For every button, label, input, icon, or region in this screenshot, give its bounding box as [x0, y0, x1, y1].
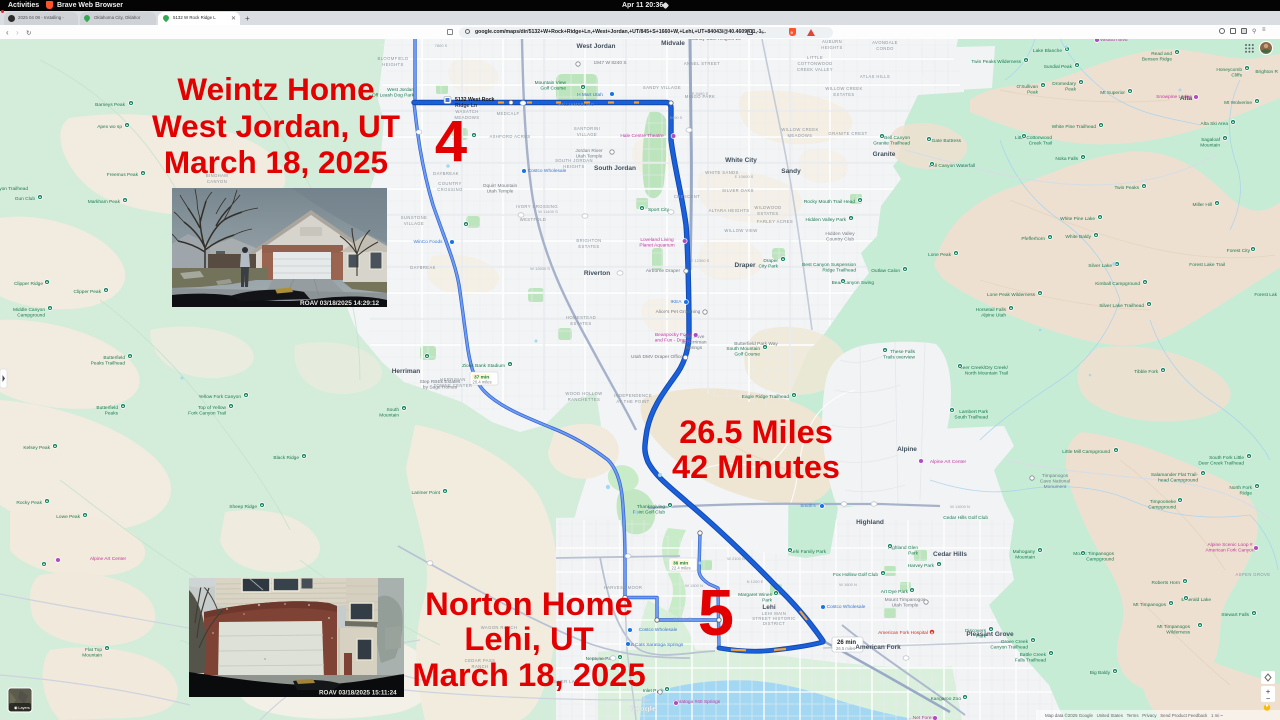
- svg-text:Butterfield: Butterfield: [103, 355, 125, 361]
- svg-text:SUNSTONE: SUNSTONE: [401, 215, 427, 220]
- svg-text:W 2100 N: W 2100 N: [727, 556, 745, 561]
- svg-text:Markham Peak: Markham Peak: [88, 199, 121, 205]
- svg-text:Falls Trailhead: Falls Trailhead: [1015, 658, 1047, 664]
- svg-text:Big Baldy: Big Baldy: [1090, 670, 1111, 676]
- svg-text:Utah Temple: Utah Temple: [576, 154, 603, 160]
- svg-text:South Trailhead: South Trailhead: [954, 415, 988, 421]
- svg-text:COTTONWOOD: COTTONWOOD: [797, 61, 832, 66]
- svg-text:INDEPENDENCE: INDEPENDENCE: [614, 393, 652, 398]
- svg-text:Hidden Valley Park: Hidden Valley Park: [806, 217, 847, 223]
- svg-text:Draper: Draper: [763, 258, 778, 264]
- svg-text:Forest Lak: Forest Lak: [1254, 292, 1277, 298]
- svg-text:Grove Creek: Grove Creek: [1001, 639, 1029, 645]
- svg-text:Fork Canyon Trail: Fork Canyon Trail: [188, 411, 226, 417]
- svg-text:E 12300 S: E 12300 S: [691, 258, 710, 263]
- svg-text:Top of Yellow: Top of Yellow: [198, 405, 227, 411]
- svg-text:Canyon Trailhead: Canyon Trailhead: [990, 645, 1028, 651]
- svg-text:Thanksgiving: Thanksgiving: [637, 504, 666, 510]
- svg-text:SANTORINI: SANTORINI: [574, 126, 600, 131]
- svg-text:ALTARA HEIGHTS: ALTARA HEIGHTS: [709, 208, 750, 213]
- svg-text:Wilderness: Wilderness: [1166, 630, 1190, 636]
- svg-text:Mt Timpanogos: Mt Timpanogos: [1133, 602, 1166, 608]
- svg-text:Mt Timpanogos: Mt Timpanogos: [1157, 624, 1190, 630]
- svg-text:DAYBREAK: DAYBREAK: [410, 265, 436, 270]
- svg-text:Peaks: Peaks: [105, 411, 119, 417]
- svg-text:Bell Canyon Waterfall: Bell Canyon Waterfall: [929, 163, 975, 169]
- svg-text:Golf Course: Golf Course: [734, 352, 760, 358]
- svg-text:Alpine Art Center: Alpine Art Center: [90, 556, 127, 562]
- svg-text:Gun Club: Gun Club: [15, 196, 36, 202]
- svg-text:W 11400 S: W 11400 S: [538, 209, 558, 214]
- svg-text:AUBURN: AUBURN: [822, 39, 842, 44]
- svg-text:DISTRICT: DISTRICT: [763, 621, 786, 626]
- svg-text:WILLOW CREEK: WILLOW CREEK: [825, 86, 862, 91]
- svg-text:Lambert Park: Lambert Park: [959, 409, 988, 415]
- svg-text:Forest Lake Trail: Forest Lake Trail: [1189, 262, 1225, 268]
- svg-text:AT THE POINT: AT THE POINT: [616, 399, 649, 404]
- svg-text:W 12600 S: W 12600 S: [530, 266, 550, 271]
- svg-text:ROAV 03/18/2025 14:29:12: ROAV 03/18/2025 14:29:12: [300, 300, 380, 307]
- svg-text:Map data ©2025 Google United: Map data ©2025 Google United States Term…: [1045, 713, 1224, 718]
- svg-text:Rocky Mouth Trail Head: Rocky Mouth Trail Head: [804, 199, 856, 205]
- svg-text:Mt Wolverine: Mt Wolverine: [1224, 100, 1252, 106]
- svg-text:Loveland Living: Loveland Living: [640, 237, 674, 243]
- svg-text:Step RBEk Estates: Step RBEk Estates: [420, 379, 461, 385]
- svg-text:Sport City: Sport City: [648, 207, 670, 213]
- svg-text:HOMESTEAD: HOMESTEAD: [566, 315, 596, 320]
- svg-text:Butterfield: Butterfield: [96, 405, 118, 411]
- svg-text:South Jordan: South Jordan: [594, 165, 636, 172]
- svg-text:Utah DMV Draper Office: Utah DMV Draper Office: [631, 354, 683, 360]
- svg-text:ESTATES: ESTATES: [570, 321, 591, 326]
- svg-text:WILDWOOD: WILDWOOD: [754, 205, 781, 210]
- svg-text:RANCHETTES: RANCHETTES: [568, 397, 600, 402]
- svg-text:VILLAGE: VILLAGE: [404, 221, 424, 226]
- svg-text:Discovers: Discovers: [965, 628, 987, 634]
- svg-text:Roberts Horn: Roberts Horn: [1151, 580, 1180, 586]
- svg-text:VILLAGE: VILLAGE: [577, 132, 597, 137]
- svg-text:Mountain: Mountain: [1015, 555, 1035, 561]
- svg-text:COUNTRY: COUNTRY: [438, 181, 461, 186]
- svg-text:CREEK VALLEY: CREEK VALLEY: [797, 67, 833, 72]
- svg-text:South: South: [386, 407, 399, 413]
- svg-text:5400 S: 5400 S: [670, 115, 683, 120]
- svg-text:Stewart Falls: Stewart Falls: [1221, 612, 1249, 618]
- svg-text:South Fork Little: South Fork Little: [1209, 455, 1244, 461]
- svg-text:Middle Canyon: Middle Canyon: [13, 307, 45, 313]
- svg-text:Mount Timpanogos: Mount Timpanogos: [885, 597, 926, 603]
- svg-text:26.5 miles: 26.5 miles: [836, 646, 855, 651]
- svg-text:Larimer Point: Larimer Point: [411, 490, 440, 496]
- svg-text:Hidden Valley: Hidden Valley: [825, 231, 855, 237]
- svg-text:Granite Trailhead: Granite Trailhead: [873, 141, 910, 147]
- svg-text:City Park: City Park: [759, 264, 779, 270]
- svg-text:Campground: Campground: [1086, 557, 1114, 563]
- svg-text:Alta Ski Area: Alta Ski Area: [1201, 121, 1229, 127]
- svg-text:Deer Creek Trailhead: Deer Creek Trailhead: [1198, 461, 1244, 467]
- svg-text:Planet Aquarium: Planet Aquarium: [639, 243, 674, 249]
- svg-text:Trails overview: Trails overview: [883, 355, 915, 361]
- svg-text:Miller Hill: Miller Hill: [1193, 202, 1212, 208]
- svg-text:O'Sullivan: O'Sullivan: [1017, 84, 1039, 90]
- svg-text:Harvey Park: Harvey Park: [908, 563, 935, 569]
- svg-text:SANDY VILLAGE: SANDY VILLAGE: [643, 85, 681, 90]
- svg-text:American Fork Canyon: American Fork Canyon: [1205, 548, 1254, 554]
- svg-text:...Net Forest: ...Net Forest: [909, 715, 936, 720]
- svg-text:Cedar Hills Golf Club: Cedar Hills Golf Club: [943, 515, 988, 521]
- svg-text:H Mart Utah: H Mart Utah: [577, 92, 603, 98]
- svg-text:American Fork Hospital: American Fork Hospital: [878, 630, 928, 636]
- svg-text:White Baldy: White Baldy: [1065, 234, 1091, 240]
- svg-text:Timpooneke: Timpooneke: [1150, 499, 1177, 505]
- svg-text:Flat Top: Flat Top: [85, 647, 102, 653]
- svg-text:CONDO: CONDO: [876, 46, 894, 51]
- svg-text:HEIGHTS: HEIGHTS: [821, 45, 842, 50]
- svg-text:Mahogany: Mahogany: [1013, 549, 1036, 555]
- svg-text:WILLIAMSBURG: WILLIAMSBURG: [558, 102, 595, 107]
- svg-text:Snowpine Lodge: Snowpine Lodge: [1156, 94, 1192, 100]
- svg-text:FARLEY ACRES: FARLEY ACRES: [757, 219, 793, 224]
- svg-text:Creek Trail: Creek Trail: [1029, 141, 1052, 147]
- svg-text:W 11000 N: W 11000 N: [950, 504, 970, 509]
- svg-text:SILVER OAKS: SILVER OAKS: [722, 188, 754, 193]
- svg-text:Alpine Scenic Loop #: Alpine Scenic Loop #: [1207, 542, 1252, 548]
- svg-text:Peak: Peak: [1027, 90, 1039, 96]
- svg-text:Battle Creek: Battle Creek: [1020, 652, 1047, 658]
- svg-text:Lone Peak: Lone Peak: [928, 252, 952, 258]
- svg-text:Bear Canyon Swing: Bear Canyon Swing: [832, 280, 875, 286]
- svg-text:Mountain View: Mountain View: [535, 80, 567, 86]
- svg-text:Park: Park: [762, 598, 772, 604]
- svg-text:Oquirr Mountain: Oquirr Mountain: [483, 183, 518, 189]
- svg-text:Pfefferhorn: Pfefferhorn: [1021, 236, 1045, 242]
- svg-text:Utah Temple: Utah Temple: [892, 603, 919, 609]
- svg-text:◉ Layers: ◉ Layers: [14, 706, 30, 710]
- svg-text:Sheep Ridge: Sheep Ridge: [229, 504, 257, 510]
- svg-text:Country Club: Country Club: [826, 237, 854, 243]
- svg-text:E 10600 S: E 10600 S: [735, 174, 754, 179]
- svg-text:MEADOWS: MEADOWS: [788, 133, 813, 138]
- svg-text:Horsetail Falls: Horsetail Falls: [976, 307, 1007, 313]
- svg-text:head Campground: head Campground: [1158, 478, 1198, 484]
- svg-text:Rocky Peak: Rocky Peak: [16, 500, 42, 506]
- svg-text:Cedar Hills: Cedar Hills: [933, 551, 967, 558]
- svg-text:Golf Course: Golf Course: [540, 86, 566, 92]
- svg-text:W 1600 N: W 1600 N: [839, 582, 857, 587]
- svg-text:BLOOMFIELD: BLOOMFIELD: [378, 56, 409, 61]
- svg-text:Ridge: Ridge: [1239, 491, 1252, 497]
- svg-text:7800 S: 7800 S: [435, 43, 448, 48]
- svg-text:Alice's Pet Grooming: Alice's Pet Grooming: [656, 309, 701, 315]
- svg-text:Costco Wholesale: Costco Wholesale: [827, 604, 866, 610]
- svg-text:Fox Hollow Golf Club: Fox Hollow Golf Club: [833, 572, 878, 578]
- svg-text:Utah Temple: Utah Temple: [487, 189, 514, 195]
- svg-text:Lone Peak Wilderness: Lone Peak Wilderness: [987, 292, 1036, 298]
- svg-text:Airborne Draper: Airborne Draper: [646, 268, 681, 274]
- svg-text:Monument: Monument: [1044, 484, 1067, 490]
- svg-text:ASPEN GROVE: ASPEN GROVE: [1236, 572, 1271, 577]
- svg-text:Clipper Ridge: Clipper Ridge: [14, 281, 43, 287]
- svg-text:Jordan River: Jordan River: [575, 148, 603, 154]
- svg-text:IKEA: IKEA: [671, 299, 683, 305]
- svg-text:West Jordan: West Jordan: [577, 43, 616, 50]
- svg-text:Herriman: Herriman: [392, 368, 421, 375]
- svg-text:Google: Google: [629, 704, 657, 713]
- svg-text:Highland: Highland: [856, 519, 884, 526]
- svg-text:Black Ridge: Black Ridge: [273, 455, 299, 461]
- svg-text:Brighton R: Brighton R: [1255, 69, 1278, 75]
- svg-text:Kelsey Peak: Kelsey Peak: [23, 445, 50, 451]
- svg-text:by Sage Homes: by Sage Homes: [423, 385, 458, 391]
- svg-text:Lake Blanche: Lake Blanche: [1033, 48, 1062, 54]
- svg-text:Twin Peaks Wilderness: Twin Peaks Wilderness: [971, 59, 1021, 65]
- svg-text:Canyon Trailhead: Canyon Trailhead: [0, 186, 28, 192]
- svg-text:Salamander Flat Trail-: Salamander Flat Trail-: [1151, 472, 1199, 478]
- svg-text:Cliffs: Cliffs: [1231, 73, 1242, 79]
- svg-text:Art Dye Park: Art Dye Park: [881, 589, 909, 595]
- svg-text:Mountain: Mountain: [82, 653, 102, 659]
- svg-text:ANNEL STREET: ANNEL STREET: [684, 61, 720, 66]
- svg-text:Zions Bank Stadium: Zions Bank Stadium: [462, 363, 505, 369]
- svg-text:AVONDALE: AVONDALE: [872, 40, 898, 45]
- svg-text:Benson Ridge: Benson Ridge: [1142, 57, 1172, 63]
- svg-text:Noka Falls: Noka Falls: [1055, 156, 1078, 162]
- svg-text:North Mountain Trail: North Mountain Trail: [965, 371, 1008, 377]
- svg-text:Smith's: Smith's: [800, 503, 816, 509]
- svg-text:Sandy: Sandy: [781, 168, 801, 175]
- svg-text:Kangaroo Zoo: Kangaroo Zoo: [931, 696, 962, 702]
- svg-text:−: −: [1266, 696, 1270, 703]
- svg-text:HEIGHTS: HEIGHTS: [382, 62, 403, 67]
- svg-text:Lehi: Lehi: [762, 604, 776, 611]
- svg-text:Tibble Fork: Tibble Fork: [1134, 369, 1158, 375]
- svg-text:WOOD HOLLOW: WOOD HOLLOW: [565, 391, 602, 396]
- svg-text:Dromedary: Dromedary: [1052, 81, 1076, 87]
- svg-text:American Fork: American Fork: [855, 644, 901, 651]
- svg-text:ASHFORD ACRES: ASHFORD ACRES: [489, 134, 530, 139]
- svg-text:Eagle Ridge Trailhead: Eagle Ridge Trailhead: [742, 394, 790, 400]
- svg-text:White Pine Trailhead: White Pine Trailhead: [1052, 124, 1097, 130]
- svg-text:These Falls: These Falls: [890, 349, 915, 355]
- svg-text:20.4 miles: 20.4 miles: [473, 380, 492, 385]
- svg-text:Best Canyon Suspension: Best Canyon Suspension: [802, 262, 856, 268]
- svg-text:Gate Buttress: Gate Buttress: [932, 138, 962, 144]
- svg-text:Hale Centre Theatre: Hale Centre Theatre: [620, 133, 664, 139]
- svg-text:Springs: Springs: [686, 345, 703, 351]
- svg-text:Draper: Draper: [735, 262, 756, 269]
- svg-text:Sandy Utah Heights 16: Sandy Utah Heights 16: [691, 39, 741, 42]
- svg-text:Yellow Fork Canyon: Yellow Fork Canyon: [199, 394, 242, 400]
- svg-text:Lehi Family Park: Lehi Family Park: [790, 549, 826, 555]
- svg-text:1947 W 8240 S: 1947 W 8240 S: [593, 60, 626, 66]
- svg-text:Sagaloaf: Sagaloaf: [1201, 137, 1221, 143]
- svg-text:Mountain: Mountain: [379, 413, 399, 419]
- svg-text:Park: Park: [908, 551, 918, 557]
- svg-text:22.4 miles: 22.4 miles: [672, 566, 691, 571]
- svg-text:Costco Wholesale: Costco Wholesale: [528, 168, 567, 174]
- svg-text:LITTLE: LITTLE: [807, 55, 823, 60]
- svg-text:Little Mill Campground: Little Mill Campground: [1062, 449, 1110, 455]
- svg-text:Lowe Peak: Lowe Peak: [56, 514, 80, 520]
- svg-text:BRIGHTON: BRIGHTON: [576, 238, 601, 243]
- svg-text:Clipper Peak: Clipper Peak: [74, 289, 102, 295]
- svg-text:Silver Lake Trailhead: Silver Lake Trailhead: [1099, 303, 1144, 309]
- svg-text:Mt Superior: Mt Superior: [1100, 90, 1125, 96]
- svg-text:Little Cottonwood: Little Cottonwood: [1015, 135, 1052, 141]
- svg-text:White City: White City: [725, 157, 757, 164]
- svg-text:North Fork: North Fork: [1229, 485, 1252, 491]
- svg-text:Alpine Utah: Alpine Utah: [981, 313, 1006, 319]
- svg-text:E 9400 S: E 9400 S: [692, 91, 709, 96]
- svg-text:ESTATES: ESTATES: [757, 211, 778, 216]
- svg-text:Campground: Campground: [17, 313, 45, 319]
- svg-text:WILLOW CREEK: WILLOW CREEK: [781, 127, 818, 132]
- svg-text:CRESCENT: CRESCENT: [674, 194, 700, 199]
- svg-text:Saratoga #40 Springs: Saratoga #40 Springs: [674, 699, 721, 705]
- svg-text:White Pine Lake: White Pine Lake: [1060, 216, 1095, 222]
- svg-text:Forest City: Forest City: [1227, 248, 1251, 254]
- svg-text:Deer Creek/Dry Creek/: Deer Creek/Dry Creek/: [959, 365, 1008, 371]
- svg-text:WESTFOLD: WESTFOLD: [520, 217, 546, 222]
- svg-text:Mount Timpanogos: Mount Timpanogos: [1073, 551, 1114, 557]
- svg-text:Peaks Trailhead: Peaks Trailhead: [91, 361, 126, 367]
- svg-text:Cave National: Cave National: [1040, 479, 1070, 485]
- svg-text:Butterfield Park Way: Butterfield Park Way: [734, 341, 778, 347]
- svg-text:Peak: Peak: [1065, 87, 1077, 93]
- svg-text:Timpanogos: Timpanogos: [1042, 473, 1069, 479]
- svg-text:+: +: [1266, 689, 1270, 696]
- svg-text:Kimball Campground: Kimball Campground: [1095, 281, 1140, 287]
- svg-text:GRANITE CREST: GRANITE CREST: [828, 131, 867, 136]
- svg-text:ESTATES: ESTATES: [833, 92, 854, 97]
- svg-text:Campground: Campground: [1148, 505, 1176, 511]
- svg-text:WinCo Foods: WinCo Foods: [413, 239, 443, 245]
- svg-text:Mountain: Mountain: [1200, 143, 1220, 149]
- svg-text:Honeycomb: Honeycomb: [1216, 67, 1242, 73]
- svg-text:Riverton: Riverton: [584, 270, 610, 277]
- svg-text:Twin Peaks: Twin Peaks: [1114, 185, 1139, 191]
- svg-text:HEIGHTS: HEIGHTS: [563, 164, 584, 169]
- svg-text:Wasatch Blvd: Wasatch Blvd: [1098, 39, 1127, 43]
- svg-text:Beanpocky Food: Beanpocky Food: [655, 332, 691, 338]
- svg-text:and Fun - Draper: and Fun - Draper: [655, 338, 692, 344]
- svg-text:CROSSING: CROSSING: [437, 187, 463, 192]
- svg-text:MEDCALF: MEDCALF: [497, 111, 520, 116]
- svg-text:Midvale: Midvale: [661, 40, 685, 47]
- svg-text:ESTATES: ESTATES: [578, 244, 599, 249]
- svg-text:Silver Lake: Silver Lake: [1088, 263, 1112, 269]
- svg-text:Outlaw Calon: Outlaw Calon: [871, 268, 900, 274]
- svg-text:ATLAS HILLS: ATLAS HILLS: [860, 74, 890, 79]
- svg-text:Park: Park: [976, 634, 986, 640]
- svg-text:WILLOW VIEW: WILLOW VIEW: [724, 228, 757, 233]
- svg-text:Read and: Read and: [1151, 51, 1172, 57]
- svg-text:Granite: Granite: [873, 151, 896, 158]
- svg-text:Bell Canyon: Bell Canyon: [884, 135, 910, 141]
- svg-text:Sundial Peak: Sundial Peak: [1044, 64, 1073, 70]
- svg-text:Ridge Trailhead: Ridge Trailhead: [822, 268, 856, 274]
